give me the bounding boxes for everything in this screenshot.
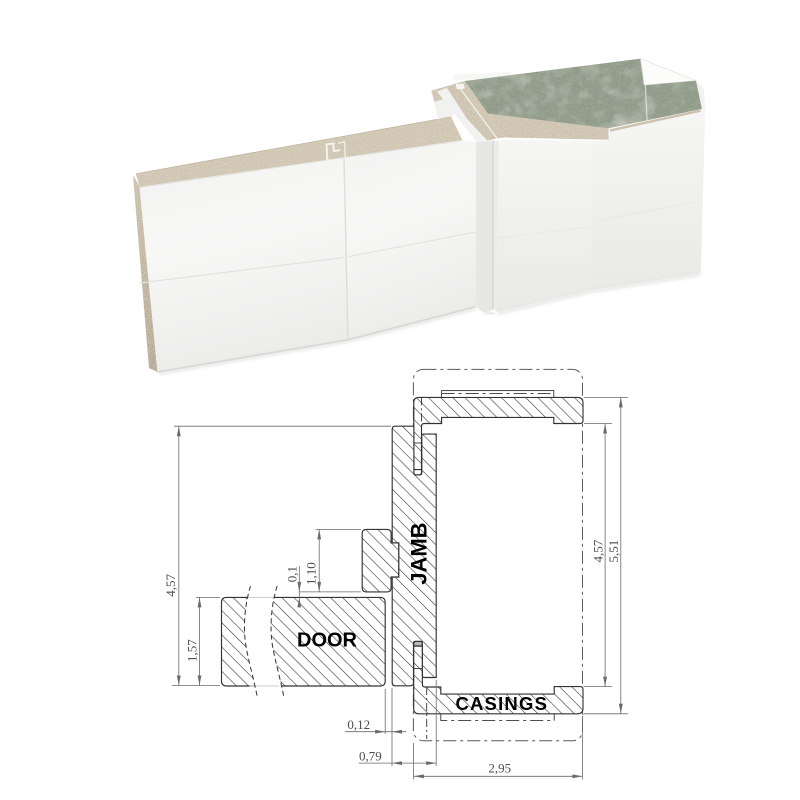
svg-text:2,95: 2,95 <box>488 760 511 775</box>
svg-text:DOOR: DOOR <box>297 630 358 652</box>
svg-text:4,57: 4,57 <box>591 539 606 562</box>
svg-text:CASINGS: CASINGS <box>455 693 548 714</box>
svg-text:1,10: 1,10 <box>304 562 319 585</box>
svg-text:5,51: 5,51 <box>606 540 621 563</box>
svg-text:4,57: 4,57 <box>163 573 178 596</box>
svg-text:1,57: 1,57 <box>185 639 200 662</box>
svg-text:JAMB: JAMB <box>406 522 431 584</box>
svg-text:0,12: 0,12 <box>347 717 370 732</box>
svg-text:0,1: 0,1 <box>285 566 300 582</box>
svg-text:0,79: 0,79 <box>359 749 382 764</box>
